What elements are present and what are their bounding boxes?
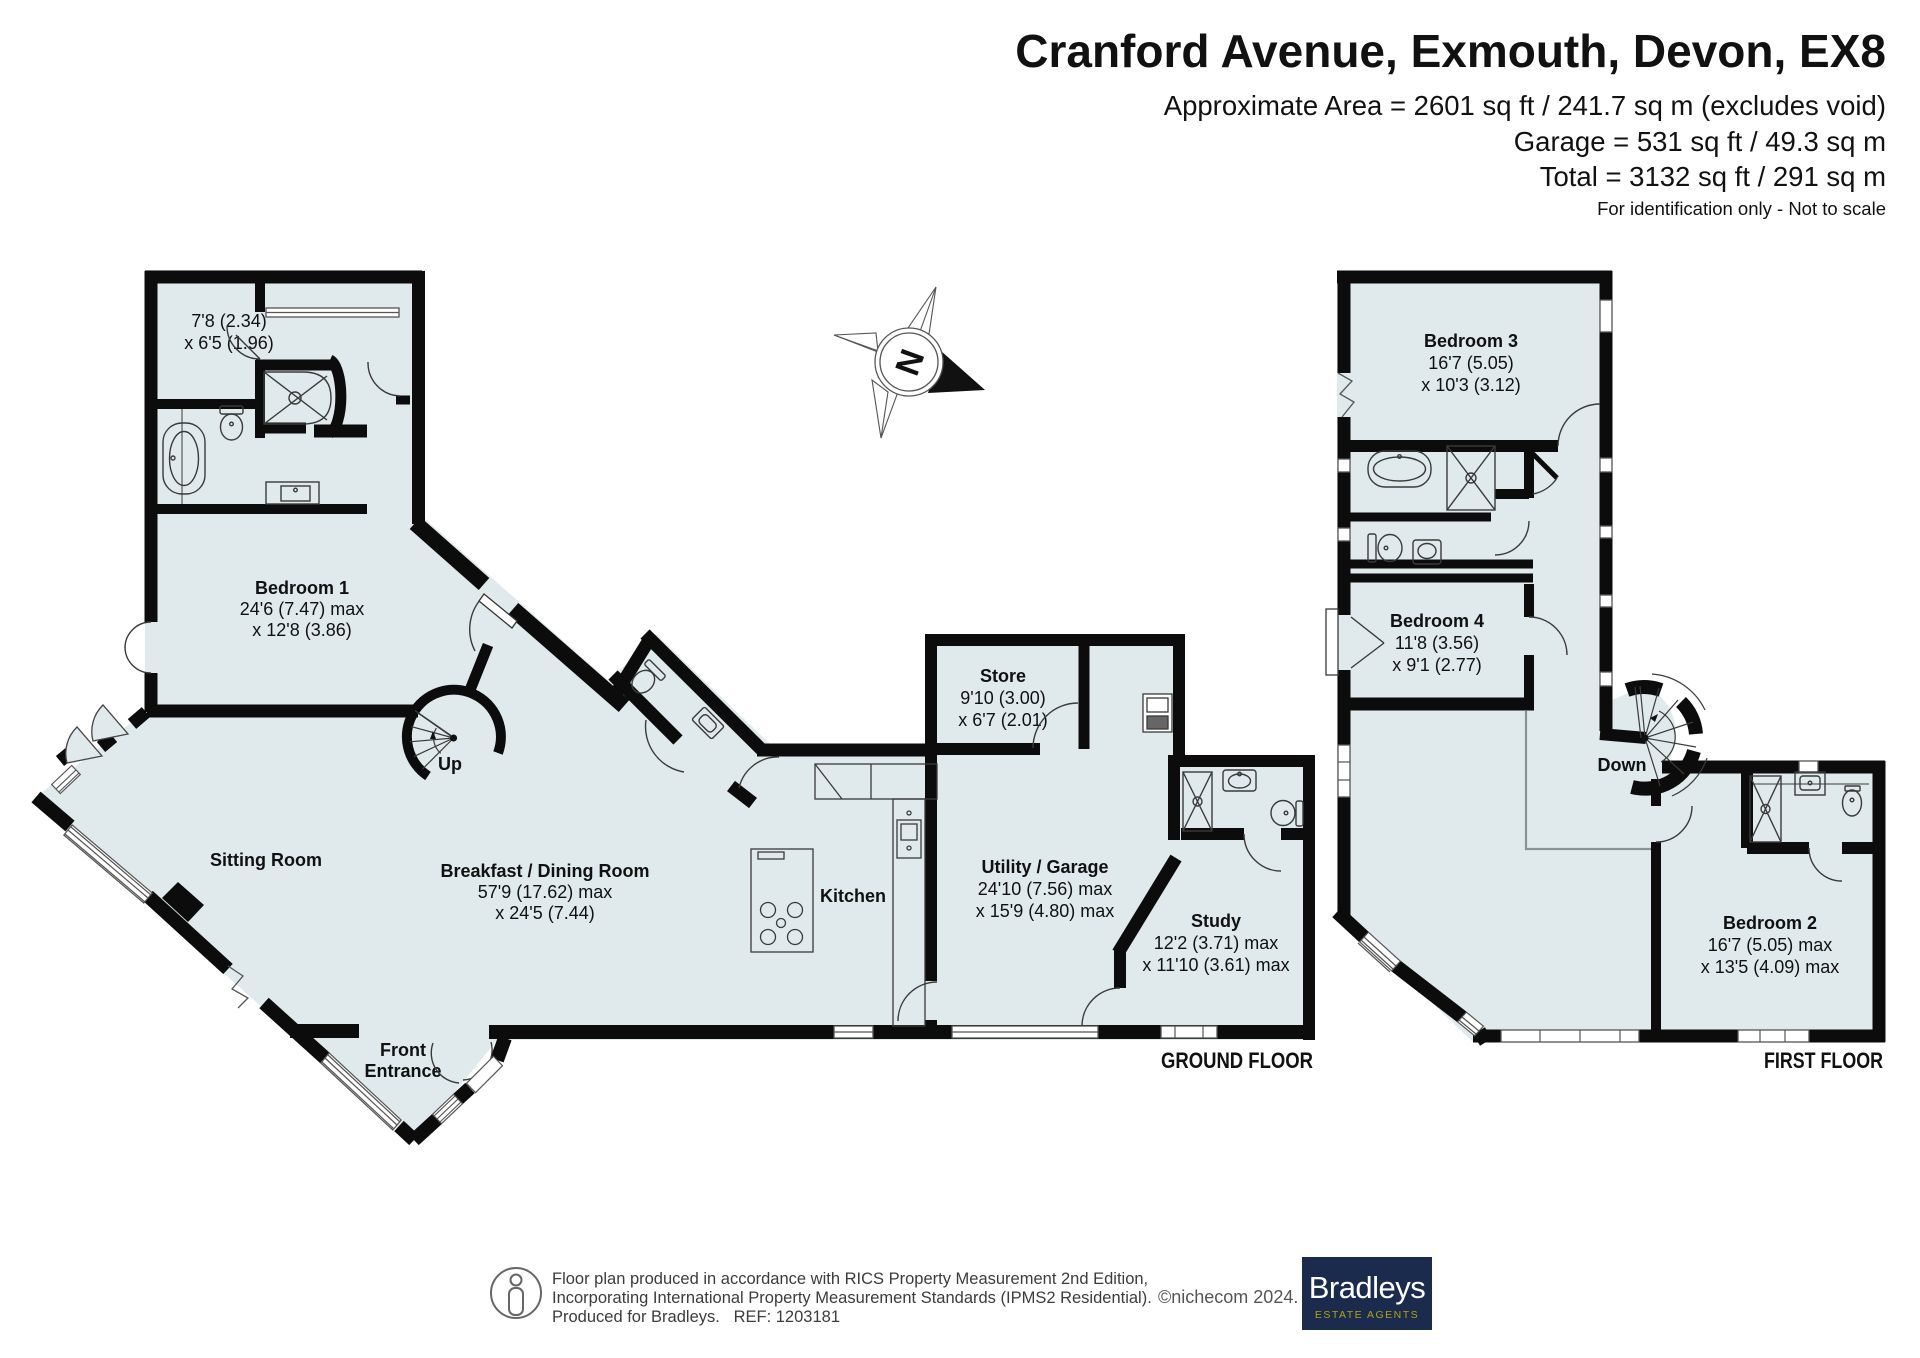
svg-text:Kitchen: Kitchen [820, 886, 886, 906]
svg-text:x 11'10 (3.61) max: x 11'10 (3.61) max [1142, 955, 1289, 975]
svg-text:Garage = 531 sq ft / 49.3 sq m: Garage = 531 sq ft / 49.3 sq m [1514, 126, 1886, 157]
svg-text:Incorporating International Pr: Incorporating International Property Mea… [552, 1289, 1152, 1307]
svg-text:Front: Front [380, 1040, 426, 1060]
svg-text:Bradleys: Bradleys [1309, 1270, 1426, 1305]
svg-text:Bedroom 2: Bedroom 2 [1723, 913, 1817, 933]
svg-text:Study: Study [1191, 911, 1241, 931]
svg-text:Breakfast / Dining Room: Breakfast / Dining Room [440, 861, 649, 881]
svg-text:9'10 (3.00): 9'10 (3.00) [960, 688, 1046, 708]
svg-text:Bedroom 3: Bedroom 3 [1424, 331, 1518, 351]
svg-text:x 24'5 (7.44): x 24'5 (7.44) [495, 903, 595, 923]
svg-text:ESTATE AGENTS: ESTATE AGENTS [1315, 1309, 1419, 1321]
svg-text:Sitting Room: Sitting Room [210, 850, 322, 870]
svg-text:12'2 (3.71) max: 12'2 (3.71) max [1154, 933, 1279, 953]
svg-text:x 10'3 (3.12): x 10'3 (3.12) [1421, 375, 1521, 395]
svg-text:Bedroom 1: Bedroom 1 [255, 578, 349, 598]
svg-text:Total = 3132 sq ft / 291 sq m: Total = 3132 sq ft / 291 sq m [1540, 161, 1886, 192]
svg-text:x 6'7 (2.01): x 6'7 (2.01) [958, 710, 1047, 730]
svg-text:FIRST FLOOR: FIRST FLOOR [1764, 1048, 1883, 1073]
svg-text:7'8 (2.34): 7'8 (2.34) [191, 311, 266, 331]
svg-text:x 9'1 (2.77): x 9'1 (2.77) [1392, 655, 1481, 675]
svg-text:16'7 (5.05): 16'7 (5.05) [1428, 353, 1514, 373]
svg-text:Approximate Area = 2601 sq ft: Approximate Area = 2601 sq ft / 241.7 sq… [1164, 90, 1886, 121]
svg-text:Up: Up [438, 754, 462, 774]
svg-text:Bedroom 4: Bedroom 4 [1390, 611, 1484, 631]
svg-text:24'10 (7.56) max: 24'10 (7.56) max [978, 879, 1113, 899]
svg-text:11'8 (3.56): 11'8 (3.56) [1395, 633, 1479, 653]
svg-text:24'6 (7.47) max: 24'6 (7.47) max [240, 599, 365, 619]
svg-text:Produced for Bradleys. REF:: Produced for Bradleys. REF: 1203181 [552, 1308, 840, 1326]
svg-text:x 15'9 (4.80) max: x 15'9 (4.80) max [976, 901, 1115, 921]
svg-text:Cranford Avenue, Exmouth, Devo: Cranford Avenue, Exmouth, Devon, EX8 [1015, 25, 1886, 77]
svg-text:For identification only - Not: For identification only - Not to scale [1597, 198, 1886, 219]
svg-text:Store: Store [980, 666, 1026, 686]
svg-text:©nichecom 2024.: ©nichecom 2024. [1158, 1287, 1298, 1307]
svg-text:x 12'8 (3.86): x 12'8 (3.86) [252, 620, 352, 640]
svg-text:x 13'5 (4.09) max: x 13'5 (4.09) max [1701, 957, 1840, 977]
svg-text:Entrance: Entrance [364, 1061, 441, 1081]
svg-text:Floor plan produced in accorda: Floor plan produced in accordance with R… [552, 1270, 1148, 1288]
svg-text:Utility / Garage: Utility / Garage [981, 857, 1108, 877]
svg-text:57'9 (17.62) max: 57'9 (17.62) max [478, 882, 613, 902]
svg-text:Down: Down [1598, 755, 1647, 775]
svg-text:GROUND FLOOR: GROUND FLOOR [1161, 1048, 1313, 1073]
svg-text:16'7 (5.05) max: 16'7 (5.05) max [1708, 935, 1833, 955]
